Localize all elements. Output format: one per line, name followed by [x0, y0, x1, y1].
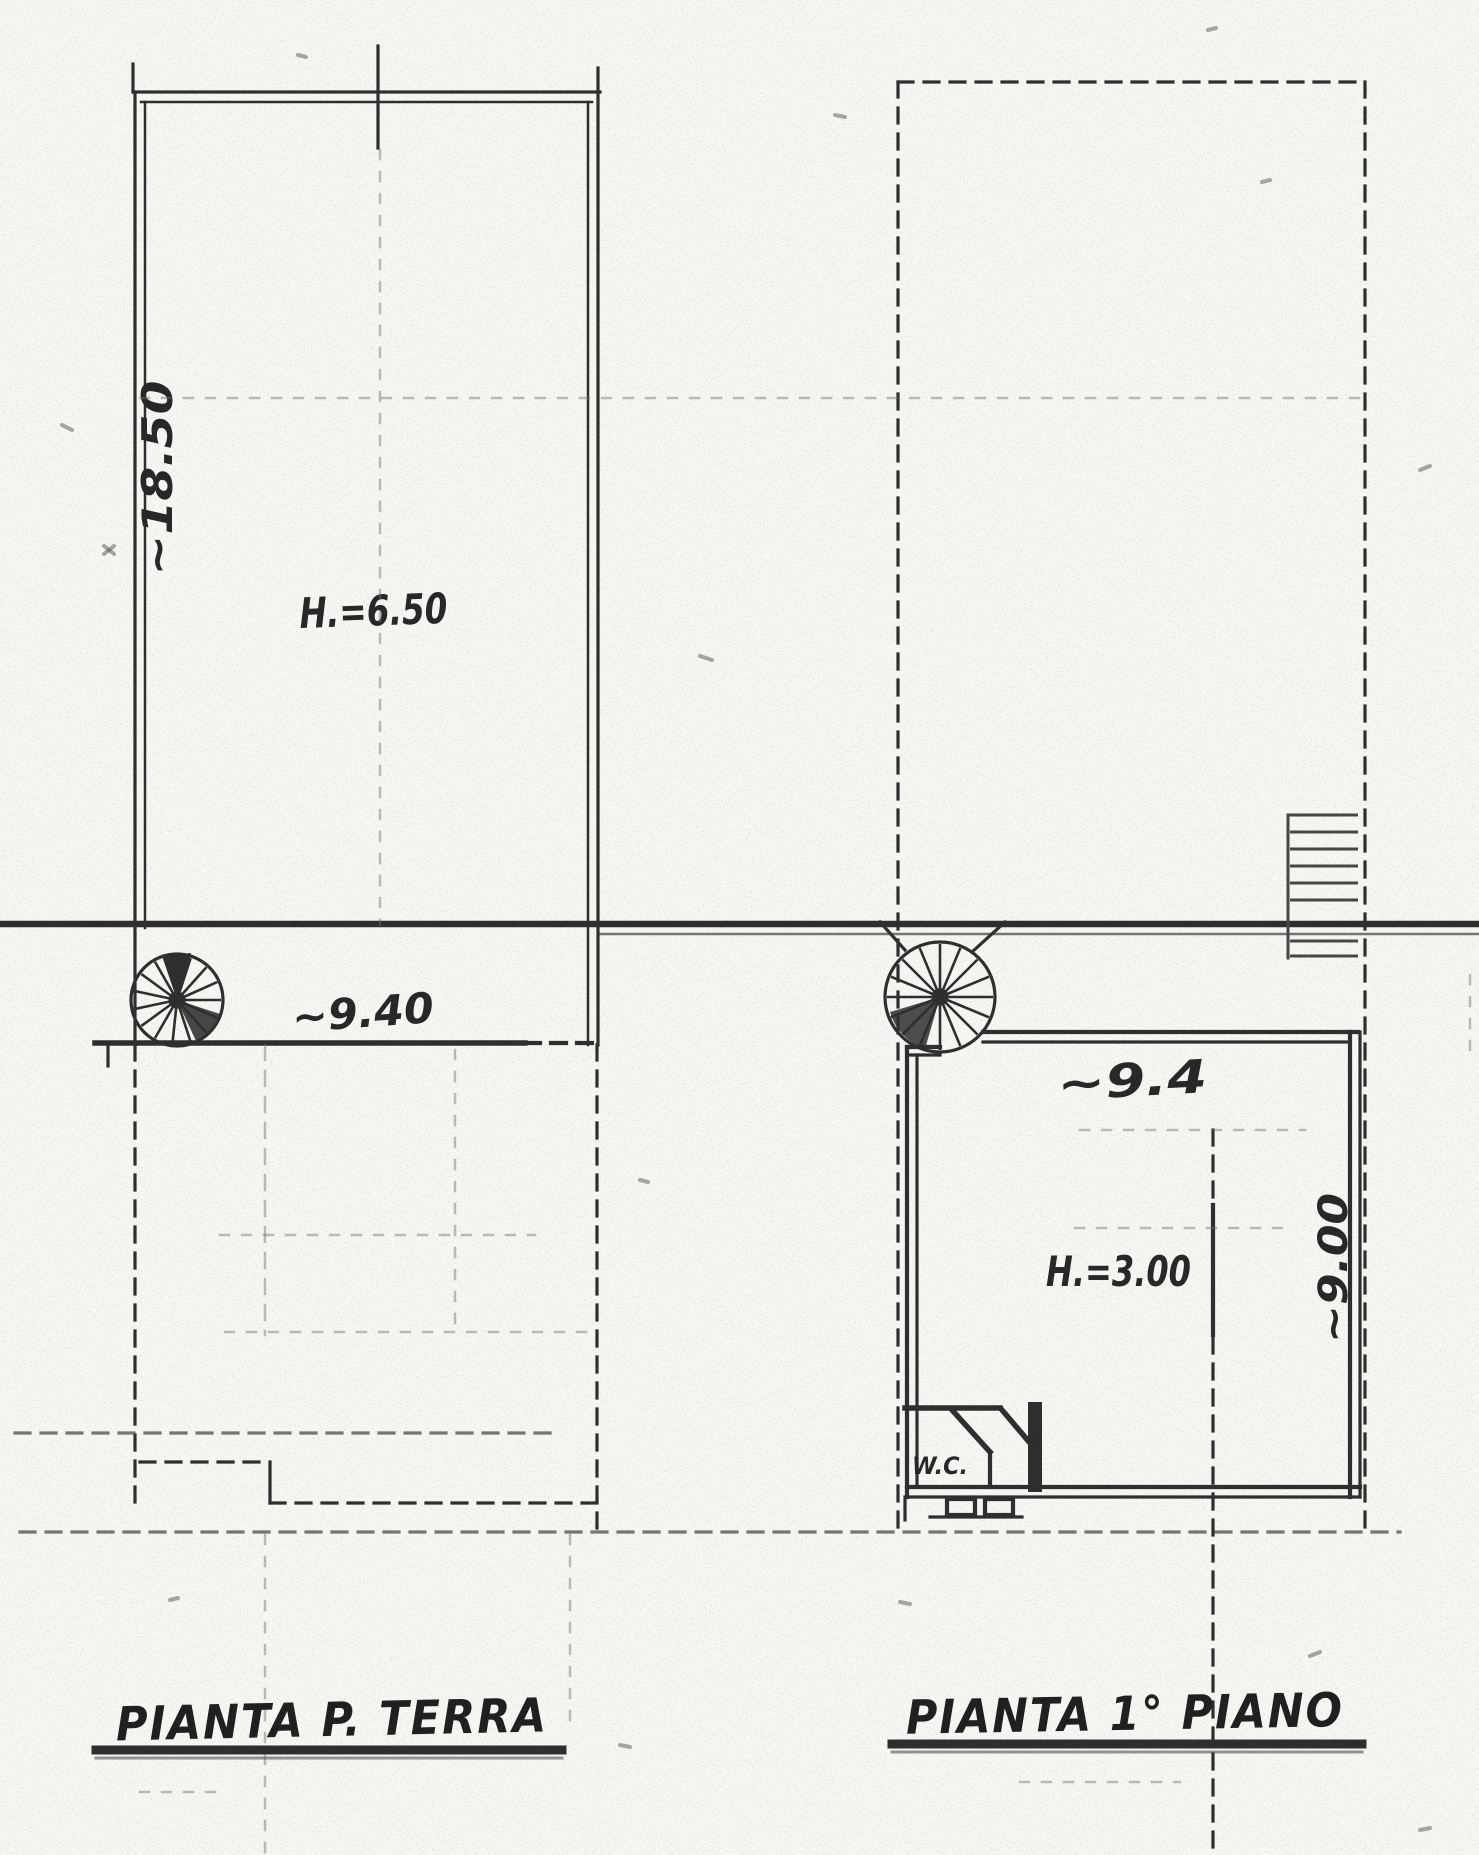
- scan-grain-overlay: [0, 0, 1479, 1855]
- scanned-floor-plan-page: H.=6.50 ~9.40 ~18.50: [0, 0, 1479, 1855]
